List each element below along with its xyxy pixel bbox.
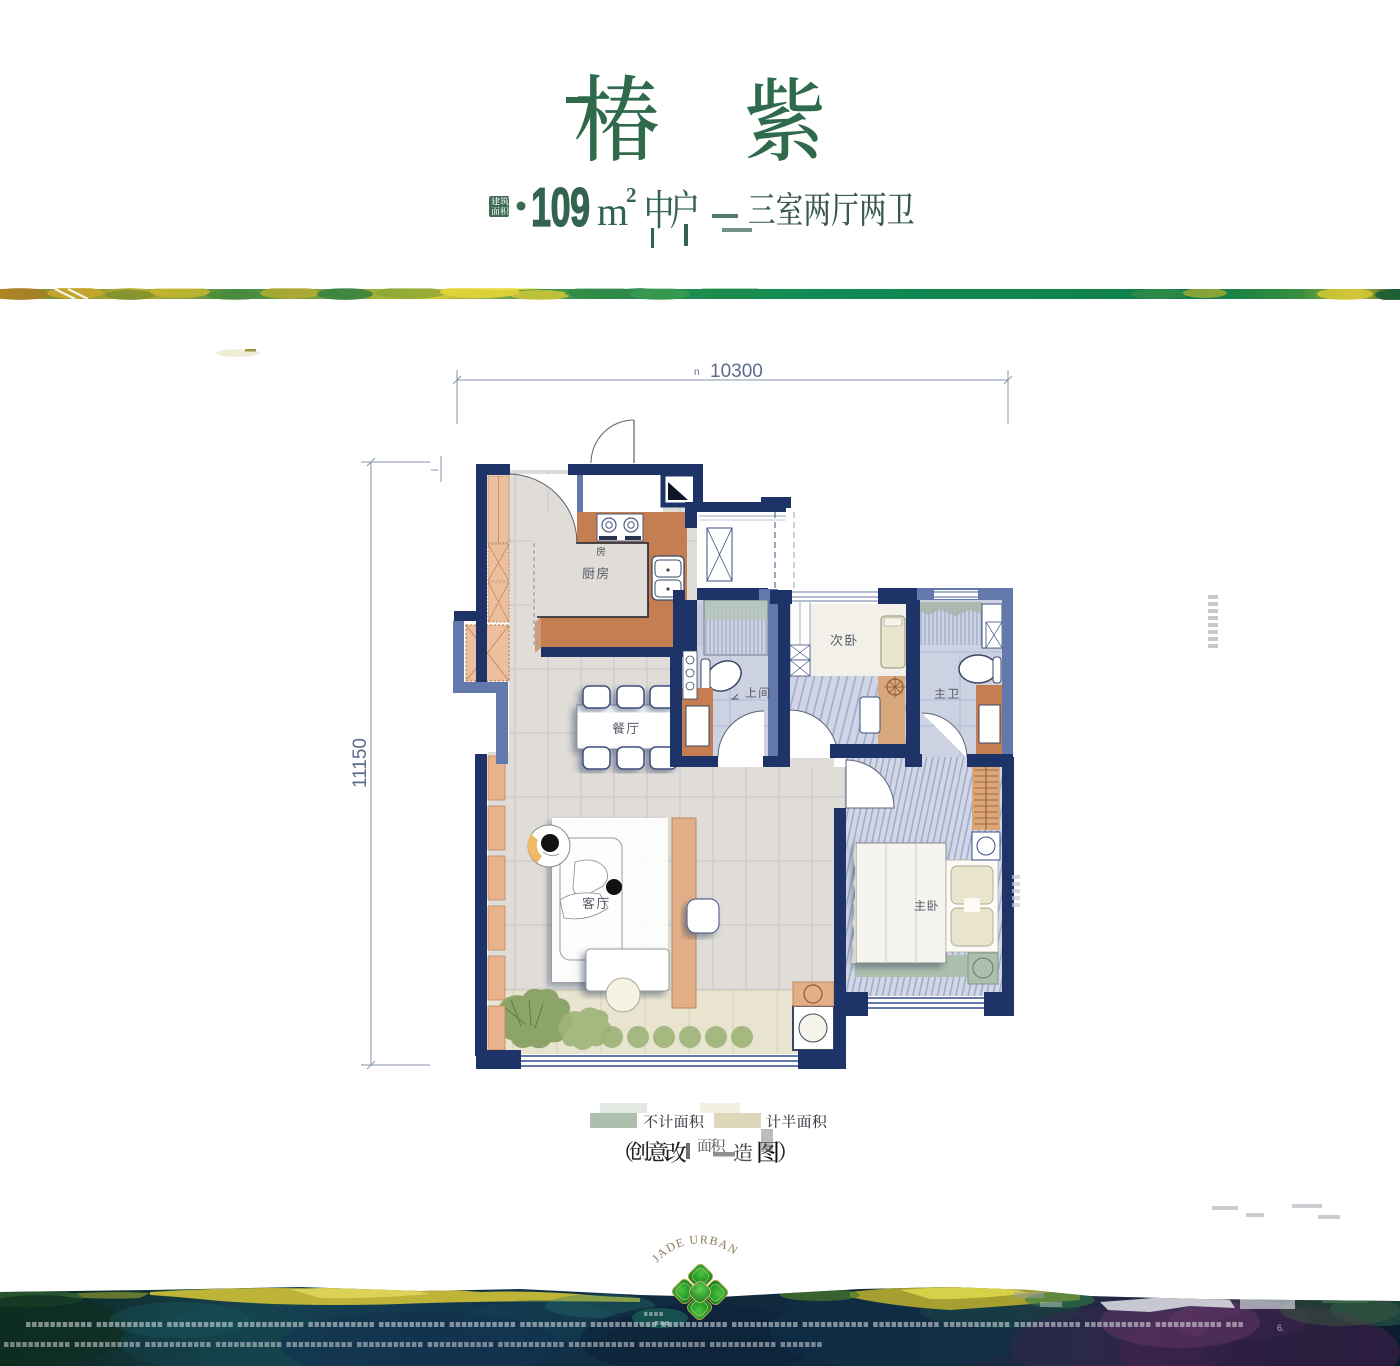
svg-text:n: n: [694, 367, 700, 378]
svg-text:11150: 11150: [350, 738, 371, 788]
svg-text:6.: 6.: [1277, 1323, 1285, 1333]
svg-text:m: m: [597, 189, 628, 234]
svg-text:10300: 10300: [710, 361, 763, 382]
svg-text:2: 2: [626, 183, 637, 207]
svg-text:109: 109: [531, 176, 590, 237]
